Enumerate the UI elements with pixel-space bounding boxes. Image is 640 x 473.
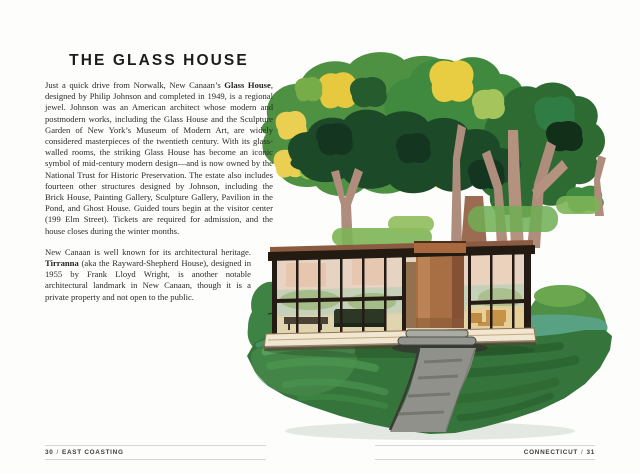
chimney-cap	[414, 241, 466, 253]
paragraph-2: New Canaan is well known for its archite…	[45, 247, 251, 303]
book-spread: THE GLASS HOUSE Just a quick drive from …	[0, 0, 640, 473]
right-section-label: CONNECTICUT	[524, 449, 578, 456]
brick-chimney	[416, 252, 464, 328]
paragraph-1: Just a quick drive from Norwalk, New Can…	[45, 80, 273, 237]
footer-separator: /	[57, 449, 59, 456]
left-footer: 30 / EAST COASTING	[45, 445, 266, 460]
right-footer: CONNECTICUT / 31	[375, 445, 595, 460]
page-title: THE GLASS HOUSE	[45, 52, 273, 70]
left-section-label: EAST COASTING	[62, 449, 124, 456]
footer-separator: /	[581, 449, 583, 456]
right-page-number: 31	[586, 449, 595, 456]
tree-canopy	[262, 52, 605, 218]
left-page-number: 30	[45, 449, 54, 456]
body-copy: Just a quick drive from Norwalk, New Can…	[45, 80, 273, 313]
